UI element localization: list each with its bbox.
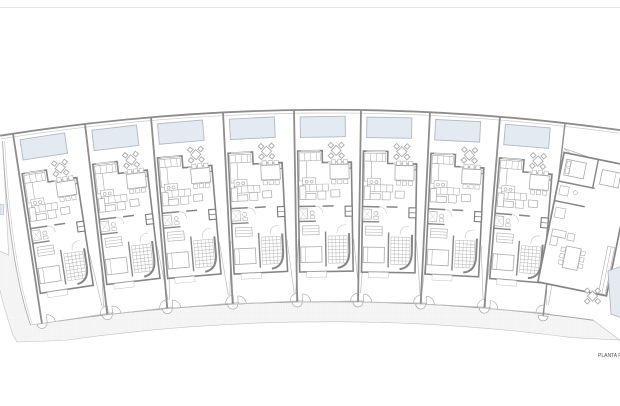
svg-text:PLANTA PRIMERA: PLANTA PRIMERA bbox=[598, 353, 620, 359]
